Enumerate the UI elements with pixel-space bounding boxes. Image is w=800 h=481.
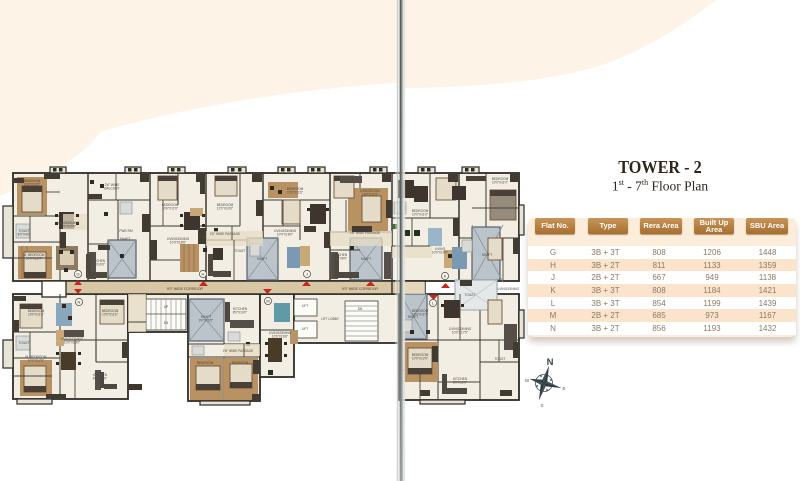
svg-text:10'0"X12'0": 10'0"X12'0" (412, 356, 428, 360)
svg-text:10'0"X11'6": 10'0"X11'6" (28, 312, 44, 316)
svg-text:10'0"X11'6": 10'0"X11'6" (102, 312, 118, 316)
svg-text:N: N (78, 300, 81, 305)
svg-text:S: S (540, 403, 543, 408)
svg-text:10'0"X12'0": 10'0"X12'0" (24, 182, 40, 186)
svg-text:10'0"X16'0": 10'0"X16'0" (432, 250, 448, 254)
svg-text:H: H (202, 272, 205, 277)
svg-text:N: N (547, 357, 554, 368)
svg-text:SHAFT: SHAFT (120, 237, 131, 241)
svg-text:DN: DN (358, 307, 363, 311)
svg-text:DN: DN (164, 321, 169, 325)
svg-text:SHAFT: SHAFT (257, 257, 268, 261)
svg-text:G: G (76, 272, 79, 277)
svg-text:M: M (266, 299, 269, 304)
svg-text:10'0"X11'0": 10'0"X11'0" (362, 192, 378, 196)
svg-text:10'0"X17'0": 10'0"X17'0" (452, 330, 468, 334)
svg-text:SHAFT: SHAFT (361, 257, 372, 261)
svg-text:BEDROOM: BEDROOM (232, 361, 249, 365)
svg-text:9'0"X10'5": 9'0"X10'5" (199, 318, 213, 322)
svg-text:10'0"X11'6": 10'0"X11'6" (287, 190, 303, 194)
svg-text:TOILET: TOILET (494, 357, 505, 361)
svg-text:2'6" WIDE PASSAGE: 2'6" WIDE PASSAGE (210, 232, 240, 236)
svg-text:10'0"X11'0": 10'0"X11'0" (492, 180, 508, 184)
svg-text:SHAFT: SHAFT (408, 315, 419, 319)
svg-text:BEDROOM: BEDROOM (197, 361, 214, 365)
svg-text:10'0"X20'0": 10'0"X20'0" (60, 224, 76, 228)
svg-text:TOILET: TOILET (234, 249, 245, 253)
svg-text:TOILET: TOILET (464, 293, 475, 297)
svg-text:2'6" WIDE PASSAGE: 2'6" WIDE PASSAGE (350, 231, 380, 235)
svg-text:UP: UP (164, 305, 168, 309)
svg-text:10'0"X18'6": 10'0"X18'6" (170, 240, 186, 244)
svg-text:K: K (444, 274, 447, 279)
svg-text:LIFT LOBBY: LIFT LOBBY (321, 317, 340, 321)
svg-text:LIVING/DINING: LIVING/DINING (497, 287, 520, 291)
svg-text:10'0"X12'0": 10'0"X12'0" (28, 358, 44, 362)
svg-text:10'0"X12'0": 10'0"X12'0" (26, 256, 42, 260)
svg-text:10'0"X11'6": 10'0"X11'6" (162, 206, 178, 210)
svg-text:SHAFT: SHAFT (482, 253, 493, 257)
svg-text:9'0" WIDE CORRIDOR: 9'0" WIDE CORRIDOR (167, 287, 203, 291)
svg-text:12'0"X10'0": 12'0"X10'0" (217, 206, 233, 210)
svg-text:8'0"X4'6": 8'0"X4'6" (18, 232, 31, 236)
svg-text:8'0"X10'0": 8'0"X10'0" (453, 380, 467, 384)
svg-text:9'0" WIDE CORRIDOR: 9'0" WIDE CORRIDOR (342, 287, 378, 291)
svg-text:10'0"X16'6": 10'0"X16'6" (272, 334, 288, 338)
svg-text:10'0"X19'0": 10'0"X19'0" (64, 340, 80, 344)
svg-text:PWD RM: PWD RM (119, 229, 133, 233)
svg-text:BALCONY: BALCONY (104, 186, 120, 190)
svg-text:10'0"X11'6": 10'0"X11'6" (412, 212, 428, 216)
svg-text:LIFT: LIFT (302, 304, 309, 308)
svg-text:2'6" WIDE PASSAGE: 2'6" WIDE PASSAGE (223, 349, 253, 353)
svg-text:8'0"X10'0": 8'0"X10'0" (91, 262, 105, 266)
svg-text:J: J (306, 272, 308, 277)
svg-text:TOILET: TOILET (18, 341, 29, 345)
svg-text:10'0"X8'0": 10'0"X8'0" (333, 256, 347, 260)
svg-text:LIFT: LIFT (302, 327, 309, 331)
svg-text:8'0"X10'0": 8'0"X10'0" (233, 310, 247, 314)
svg-text:8'0"X10'0": 8'0"X10'0" (93, 376, 107, 380)
svg-text:E: E (562, 386, 565, 391)
svg-text:10'0"X18'0": 10'0"X18'0" (277, 232, 293, 236)
